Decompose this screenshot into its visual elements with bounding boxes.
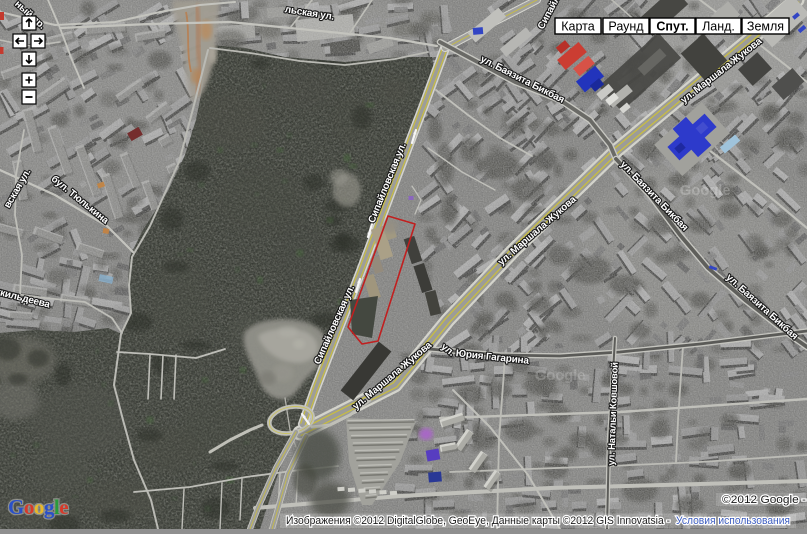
svg-text:Ланд.: Ланд. — [702, 20, 735, 34]
svg-text:©2012 Google -: ©2012 Google - — [722, 494, 806, 506]
svg-text:Карта: Карта — [561, 20, 594, 34]
svg-text:Земля: Земля — [747, 20, 784, 34]
svg-text:Google: Google — [680, 182, 730, 199]
svg-text:Раунд: Раунд — [608, 20, 644, 34]
svg-text:Google: Google — [8, 495, 68, 519]
svg-text:Условия использования: Условия использования — [676, 515, 790, 527]
svg-text:Изображения ©2012 DigitalGlobe: Изображения ©2012 DigitalGlobe, GeoEye, … — [286, 515, 670, 527]
svg-text:Спут.: Спут. — [656, 20, 688, 34]
svg-text:Google: Google — [535, 367, 585, 384]
